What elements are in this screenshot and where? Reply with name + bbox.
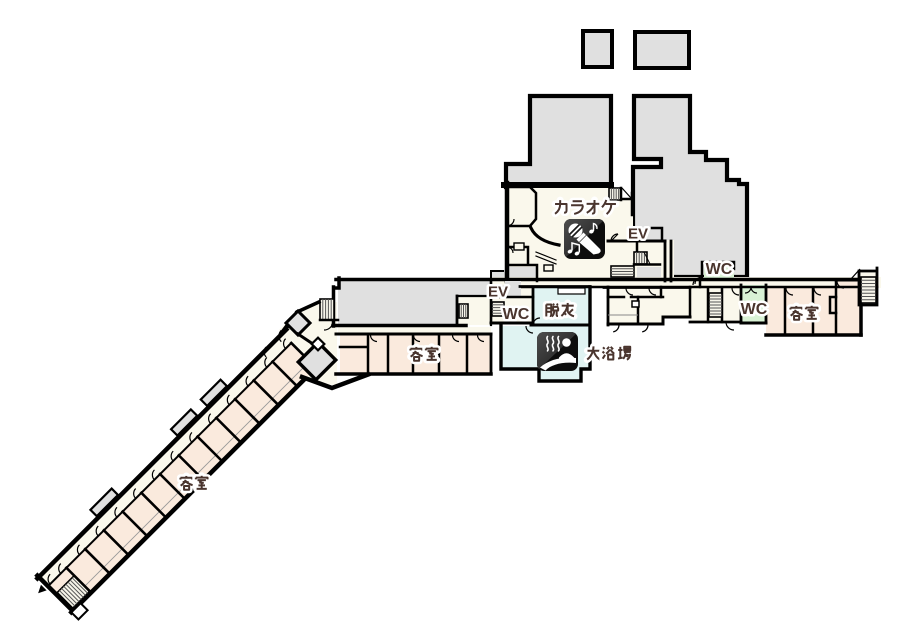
svg-text:WC: WC: [503, 306, 530, 323]
svg-text:WC: WC: [706, 261, 733, 278]
svg-text:WC: WC: [741, 301, 768, 318]
svg-text:EV: EV: [488, 283, 508, 300]
svg-text:EV: EV: [628, 225, 648, 242]
